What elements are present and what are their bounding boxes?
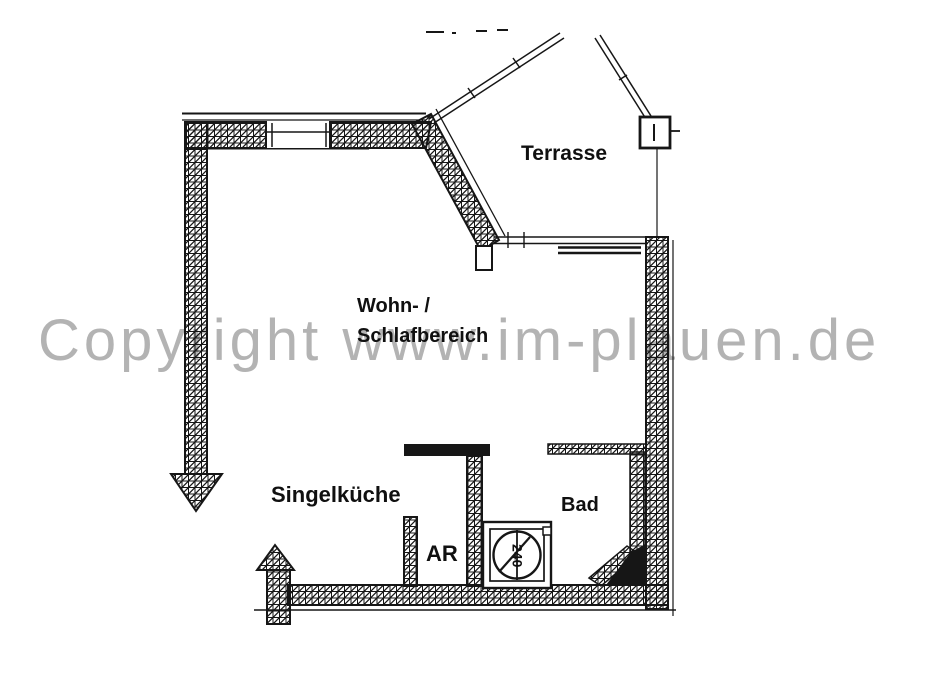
- room-label-kitchen: Singelküche: [271, 483, 401, 507]
- floor-plan-page: Copyright www.im-plauen.de: [0, 0, 933, 700]
- exterior-walls: [171, 109, 676, 624]
- room-label-storage: AR: [426, 542, 458, 566]
- room-label-living-1: Wohn- /: [357, 295, 430, 317]
- window-top-wall: [266, 123, 330, 147]
- room-label-bath: Bad: [561, 494, 599, 516]
- room-label-living-2: Schlafbereich: [357, 325, 488, 347]
- room-label-terrace: Terrasse: [521, 142, 607, 165]
- terrace-door: [494, 232, 648, 253]
- shower-size-label: 240: [509, 535, 524, 577]
- floor-plan-drawing: [0, 0, 933, 700]
